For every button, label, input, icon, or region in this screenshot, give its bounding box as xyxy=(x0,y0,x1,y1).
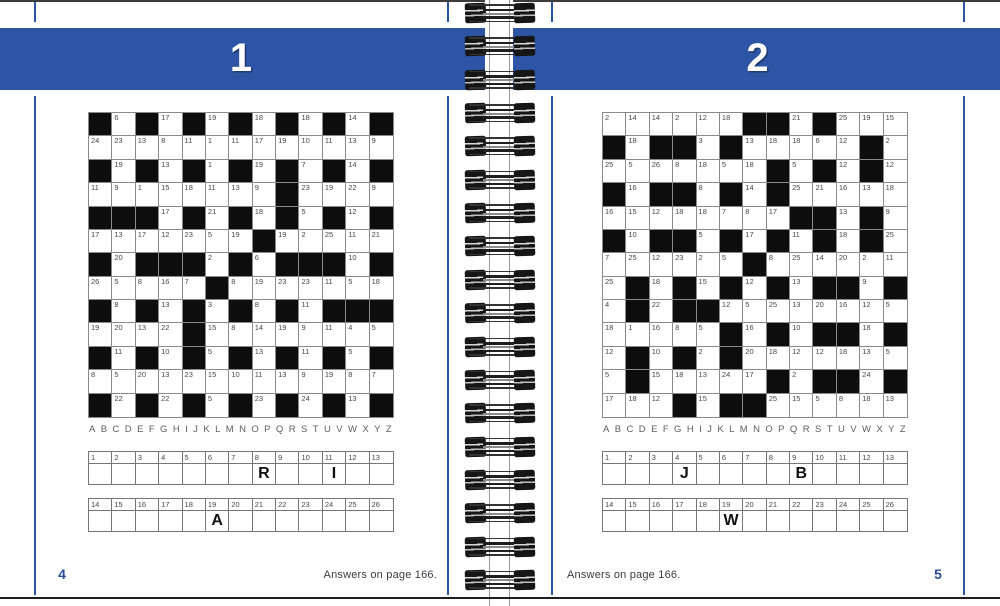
strip-number: 24 xyxy=(837,499,859,511)
grid-cell-black xyxy=(837,370,860,393)
alphabet-row-left: ABCDEFGHIJKLMNOPQRSTUVWXYZ xyxy=(89,424,392,435)
grid-cell-black xyxy=(276,394,299,417)
strip-number: 4 xyxy=(673,452,695,464)
cell-number: 15 xyxy=(792,395,800,403)
strip-letter xyxy=(229,464,251,484)
grid-cell-black xyxy=(884,323,907,346)
strip-number: 1 xyxy=(89,452,111,464)
grid-cell-black xyxy=(743,113,766,136)
coil-wire xyxy=(483,416,517,419)
grid-cell: 24 xyxy=(720,370,743,393)
cell-number: 18 xyxy=(886,184,894,192)
grid-cell: 18 xyxy=(673,207,696,230)
cell-number: 1 xyxy=(138,184,142,192)
grid-cell-black xyxy=(673,136,696,159)
strip-cell: 24 xyxy=(323,499,346,531)
cell-number: 8 xyxy=(675,324,679,332)
cell-number: 9 xyxy=(862,278,866,286)
grid-cell: 18 xyxy=(720,113,743,136)
grid-cell-black xyxy=(229,207,252,230)
strip-cell: 8R xyxy=(253,452,276,484)
strip-cell: 23 xyxy=(813,499,836,531)
grid-cell: 14 xyxy=(813,253,836,276)
strip-cell: 11 xyxy=(837,452,860,484)
strip-letter xyxy=(159,464,181,484)
coil-wire xyxy=(483,49,517,52)
cell-number: 11 xyxy=(301,301,309,309)
cell-number: 11 xyxy=(91,184,99,192)
grid-cell: 8 xyxy=(253,300,276,323)
grid-cell-black xyxy=(650,183,673,206)
alphabet-letter: T xyxy=(827,424,833,435)
grid-cell: 14 xyxy=(743,183,766,206)
alphabet-letter: R xyxy=(803,424,810,435)
answers-note-left: Answers on page 166. xyxy=(137,569,437,581)
coil-wire xyxy=(483,513,517,515)
cell-number: 10 xyxy=(161,348,169,356)
grid-cell: 17 xyxy=(159,207,182,230)
grid-cell: 23 xyxy=(299,277,322,300)
codeword-grid-right: 2141421218212519151831318186122255268185… xyxy=(602,112,908,418)
grid-cell-black xyxy=(837,277,860,300)
strip-cell: 13 xyxy=(884,452,907,484)
alphabet-letter: N xyxy=(753,424,760,435)
cell-number: 7 xyxy=(372,371,376,379)
grid-cell: 12 xyxy=(697,113,720,136)
grid-cell: 12 xyxy=(884,160,907,183)
strip-letter xyxy=(837,464,859,484)
grid-cell: 13 xyxy=(276,370,299,393)
grid-cell-black xyxy=(813,230,836,253)
grid-cell: 25 xyxy=(603,277,626,300)
grid-cell: 13 xyxy=(159,160,182,183)
coil-wire xyxy=(483,9,517,12)
grid-cell-black xyxy=(603,183,626,206)
cell-number: 25 xyxy=(792,254,800,262)
grid-cell: 11 xyxy=(299,347,322,370)
strip-letter xyxy=(206,464,228,484)
grid-cell-black xyxy=(89,113,112,136)
alphabet-letter: I xyxy=(699,424,702,435)
grid-cell-black xyxy=(767,323,790,346)
grid-cell: 16 xyxy=(837,183,860,206)
grid-cell: 24 xyxy=(299,394,322,417)
strip-cell: 21 xyxy=(253,499,276,531)
grid-cell: 24 xyxy=(89,136,112,159)
grid-cell-black xyxy=(673,277,696,300)
grid-cell: 19 xyxy=(323,370,346,393)
coil-wire xyxy=(483,546,517,548)
cell-number: 12 xyxy=(652,395,660,403)
alphabet-letter: L xyxy=(215,424,220,435)
spiral-coil xyxy=(462,168,538,192)
cell-number: 18 xyxy=(628,395,636,403)
grid-cell: 15 xyxy=(697,277,720,300)
cell-number: 24 xyxy=(91,137,99,145)
strip-cell: 15 xyxy=(626,499,649,531)
cell-number: 18 xyxy=(255,114,263,122)
coil-tab-right xyxy=(514,369,536,390)
strip-letter: W xyxy=(720,511,742,531)
strip-cell: 9 xyxy=(276,452,299,484)
cell-number: 23 xyxy=(185,371,193,379)
grid-cell-black xyxy=(860,230,883,253)
spiral-coil xyxy=(462,1,538,25)
strip-number: 8 xyxy=(253,452,275,464)
grid-cell: 21 xyxy=(813,183,836,206)
strip-letter xyxy=(112,464,134,484)
grid-cell: 25 xyxy=(603,160,626,183)
cell-number: 18 xyxy=(652,278,660,286)
grid-cell: 3 xyxy=(697,136,720,159)
alphabet-letter: S xyxy=(301,424,307,435)
cell-number: 1 xyxy=(628,324,632,332)
coil-wire xyxy=(483,483,517,486)
grid-cell: 13 xyxy=(136,323,159,346)
alphabet-letter: J xyxy=(193,424,198,435)
strip-cell: 20 xyxy=(743,499,766,531)
strip-cell: 20 xyxy=(229,499,252,531)
strip-number: 5 xyxy=(697,452,719,464)
cell-number: 22 xyxy=(652,301,660,309)
cell-number: 5 xyxy=(722,161,726,169)
grid-cell: 7 xyxy=(299,160,322,183)
grid-cell-black xyxy=(89,207,112,230)
cell-number: 5 xyxy=(348,348,352,356)
coil-wire xyxy=(483,179,517,181)
cell-number: 4 xyxy=(605,301,609,309)
grid-cell-black xyxy=(813,113,836,136)
cell-number: 2 xyxy=(208,254,212,262)
alphabet-letter: Z xyxy=(386,424,392,435)
answer-strip-left-1-13: 12345678R91011I1213 xyxy=(88,451,394,485)
grid-cell: 12 xyxy=(720,300,743,323)
coil-wire xyxy=(483,516,517,519)
cell-number: 9 xyxy=(301,324,305,332)
grid-cell-black xyxy=(136,113,159,136)
grid-cell-black xyxy=(370,394,393,417)
cell-number: 22 xyxy=(161,324,169,332)
cell-number: 13 xyxy=(255,348,263,356)
grid-cell: 14 xyxy=(346,160,369,183)
cell-number: 9 xyxy=(255,184,259,192)
coil-tab-right xyxy=(514,3,536,24)
cell-number: 2 xyxy=(792,371,796,379)
strip-number: 25 xyxy=(860,499,882,511)
cell-number: 8 xyxy=(839,395,843,403)
alphabet-letter: P xyxy=(778,424,784,435)
grid-cell: 11 xyxy=(206,183,229,206)
grid-cell: 2 xyxy=(206,253,229,276)
cell-number: 11 xyxy=(325,137,333,145)
cell-number: 2 xyxy=(699,254,703,262)
coil-wire xyxy=(483,279,517,281)
alphabet-letter: O xyxy=(765,424,772,435)
grid-cell-black xyxy=(673,300,696,323)
cell-number: 24 xyxy=(862,371,870,379)
grid-cell: 11 xyxy=(299,300,322,323)
grid-cell-black xyxy=(673,183,696,206)
grid-cell: 5 xyxy=(884,300,907,323)
alphabet-letter: A xyxy=(603,424,609,435)
coil-wire xyxy=(483,175,517,178)
strip-letter xyxy=(767,511,789,531)
cell-number: 18 xyxy=(699,208,707,216)
coil-tab-right xyxy=(514,536,536,557)
coil-wire xyxy=(483,242,517,245)
grid-cell: 22 xyxy=(112,394,135,417)
grid-cell: 8 xyxy=(673,160,696,183)
grid-cell-black xyxy=(370,300,393,323)
cell-number: 14 xyxy=(255,324,263,332)
grid-cell: 6 xyxy=(813,136,836,159)
coil-wire xyxy=(483,375,517,378)
grid-cell: 12 xyxy=(837,136,860,159)
grid-cell: 19 xyxy=(276,136,299,159)
cell-number: 18 xyxy=(605,324,613,332)
coil-wire xyxy=(483,79,517,81)
coil-tab-right xyxy=(514,336,536,357)
alphabet-letter: Y xyxy=(374,424,380,435)
cell-number: 13 xyxy=(278,371,286,379)
grid-cell: 23 xyxy=(299,183,322,206)
cell-number: 5 xyxy=(348,278,352,286)
cell-number: 18 xyxy=(628,137,636,145)
grid-cell: 18 xyxy=(860,394,883,417)
alphabet-letter: V xyxy=(850,424,856,435)
strip-letter xyxy=(276,511,298,531)
grid-cell: 11 xyxy=(323,323,346,346)
grid-cell-black xyxy=(603,230,626,253)
alphabet-letter: Y xyxy=(888,424,894,435)
grid-cell-black xyxy=(136,160,159,183)
grid-cell-black xyxy=(276,183,299,206)
coil-wire xyxy=(483,379,517,381)
cell-number: 15 xyxy=(628,208,636,216)
grid-cell: 18 xyxy=(626,136,649,159)
grid-cell-black xyxy=(229,347,252,370)
cell-number: 3 xyxy=(208,301,212,309)
cell-number: 16 xyxy=(745,324,753,332)
grid-cell: 18 xyxy=(743,160,766,183)
cell-number: 21 xyxy=(792,114,800,122)
grid-cell-black xyxy=(626,300,649,323)
grid-cell: 9 xyxy=(370,136,393,159)
strip-cell: 4 xyxy=(159,452,182,484)
grid-cell: 8 xyxy=(89,370,112,393)
cell-number: 18 xyxy=(862,324,870,332)
grid-cell-black xyxy=(276,160,299,183)
strip-letter xyxy=(370,464,393,484)
strip-letter: B xyxy=(790,464,812,484)
grid-cell-black xyxy=(276,113,299,136)
grid-cell: 18 xyxy=(673,370,696,393)
strip-letter xyxy=(89,511,111,531)
grid-cell: 13 xyxy=(884,394,907,417)
alphabet-letter: G xyxy=(160,424,167,435)
strip-letter xyxy=(767,464,789,484)
coil-wire xyxy=(483,583,517,586)
grid-cell: 5 xyxy=(206,230,229,253)
strip-letter xyxy=(650,464,672,484)
grid-cell: 13 xyxy=(743,136,766,159)
cell-number: 5 xyxy=(208,231,212,239)
strip-letter xyxy=(183,511,205,531)
cell-number: 22 xyxy=(161,395,169,403)
strip-number: 16 xyxy=(650,499,672,511)
grid-cell: 1 xyxy=(136,183,159,206)
grid-cell: 13 xyxy=(346,136,369,159)
grid-cell: 18 xyxy=(884,183,907,206)
grid-cell: 19 xyxy=(253,160,276,183)
coil-tab-right xyxy=(514,570,536,591)
grid-cell-black xyxy=(860,207,883,230)
cell-number: 12 xyxy=(839,137,847,145)
grid-cell-black xyxy=(136,253,159,276)
cell-number: 18 xyxy=(722,114,730,122)
grid-cell-black xyxy=(346,300,369,323)
coil-wire xyxy=(483,146,517,148)
grid-cell-black xyxy=(136,300,159,323)
cell-number: 19 xyxy=(208,114,216,122)
strip-letter: J xyxy=(673,464,695,484)
grid-cell: 11 xyxy=(790,230,813,253)
spiral-coil xyxy=(462,301,538,325)
cell-number: 20 xyxy=(745,348,753,356)
strip-letter xyxy=(790,511,812,531)
grid-cell: 8 xyxy=(743,207,766,230)
strip-number: 20 xyxy=(743,499,765,511)
strip-number: 22 xyxy=(276,499,298,511)
cell-number: 22 xyxy=(114,395,122,403)
cell-number: 11 xyxy=(792,231,800,239)
grid-cell: 5 xyxy=(697,323,720,346)
strip-cell: 2 xyxy=(626,452,649,484)
grid-cell: 13 xyxy=(159,370,182,393)
cell-number: 11 xyxy=(114,348,122,356)
cell-number: 12 xyxy=(652,254,660,262)
grid-cell-black xyxy=(720,277,743,300)
strip-letter xyxy=(603,511,625,531)
grid-cell: 5 xyxy=(743,300,766,323)
grid-cell: 15 xyxy=(206,323,229,346)
coil-wire xyxy=(483,216,517,219)
strip-cell: 18 xyxy=(697,499,720,531)
strip-cell: 11I xyxy=(323,452,346,484)
strip-cell: 14 xyxy=(89,499,112,531)
grid-cell: 13 xyxy=(229,183,252,206)
grid-cell-black xyxy=(720,394,743,417)
grid-cell: 12 xyxy=(346,207,369,230)
alphabet-letter: C xyxy=(627,424,634,435)
coil-wire xyxy=(483,413,517,415)
cell-number: 12 xyxy=(652,208,660,216)
cell-number: 18 xyxy=(699,161,707,169)
grid-cell: 17 xyxy=(136,230,159,253)
grid-cell: 10 xyxy=(790,323,813,346)
coil-wire xyxy=(483,550,517,553)
cell-number: 23 xyxy=(301,278,309,286)
grid-cell: 9 xyxy=(253,183,276,206)
spiral-coil xyxy=(462,34,538,58)
cell-number: 5 xyxy=(114,278,118,286)
grid-cell-black xyxy=(626,277,649,300)
grid-cell: 14 xyxy=(650,113,673,136)
grid-cell: 8 xyxy=(229,323,252,346)
strip-cell: 2 xyxy=(112,452,135,484)
grid-cell-black xyxy=(183,113,206,136)
grid-cell-black xyxy=(323,394,346,417)
cell-number: 5 xyxy=(699,324,703,332)
grid-cell-black xyxy=(767,183,790,206)
spiral-coil xyxy=(462,368,538,392)
grid-cell: 12 xyxy=(650,253,673,276)
alphabet-letter: F xyxy=(663,424,669,435)
page-border-line xyxy=(447,2,449,22)
strip-number: 26 xyxy=(884,499,907,511)
cell-number: 11 xyxy=(886,254,894,262)
strip-cell: 26 xyxy=(884,499,907,531)
strip-cell: 1 xyxy=(603,452,626,484)
puzzle-number-left: 1 xyxy=(34,28,448,90)
grid-cell-black xyxy=(720,323,743,346)
strip-number: 10 xyxy=(813,452,835,464)
grid-cell: 21 xyxy=(206,207,229,230)
alphabet-row-right: ABCDEFGHIJKLMNOPQRSTUVWXYZ xyxy=(603,424,906,435)
grid-cell: 1 xyxy=(206,136,229,159)
cell-number: 10 xyxy=(792,324,800,332)
cell-number: 8 xyxy=(675,161,679,169)
grid-cell: 15 xyxy=(626,207,649,230)
alphabet-letter: X xyxy=(362,424,368,435)
grid-cell: 13 xyxy=(697,370,720,393)
cell-number: 19 xyxy=(325,371,333,379)
page-border-line xyxy=(34,96,36,595)
grid-cell-black xyxy=(673,347,696,370)
grid-cell-black xyxy=(183,300,206,323)
coil-wire xyxy=(483,450,517,453)
grid-cell-black xyxy=(790,207,813,230)
cell-number: 17 xyxy=(745,371,753,379)
cell-number: 23 xyxy=(185,231,193,239)
grid-cell-black xyxy=(276,207,299,230)
grid-cell: 5 xyxy=(884,347,907,370)
coil-tab-right xyxy=(514,436,536,457)
grid-cell-black xyxy=(720,230,743,253)
cell-number: 19 xyxy=(114,161,122,169)
grid-cell: 14 xyxy=(346,113,369,136)
cell-number: 18 xyxy=(769,137,777,145)
cell-number: 11 xyxy=(255,371,263,379)
grid-cell: 17 xyxy=(253,136,276,159)
cell-number: 11 xyxy=(231,137,239,145)
cell-number: 15 xyxy=(699,278,707,286)
grid-cell-black xyxy=(229,253,252,276)
grid-cell: 25 xyxy=(884,230,907,253)
cell-number: 5 xyxy=(372,324,376,332)
grid-cell: 7 xyxy=(370,370,393,393)
cell-number: 5 xyxy=(628,161,632,169)
coil-wire xyxy=(483,509,517,512)
grid-cell-black xyxy=(183,207,206,230)
cell-number: 23 xyxy=(255,395,263,403)
grid-cell: 18 xyxy=(860,323,883,346)
coil-wire xyxy=(483,213,517,215)
grid-cell-black xyxy=(813,370,836,393)
grid-cell: 18 xyxy=(790,136,813,159)
cell-number: 13 xyxy=(699,371,707,379)
grid-cell: 13 xyxy=(112,230,135,253)
